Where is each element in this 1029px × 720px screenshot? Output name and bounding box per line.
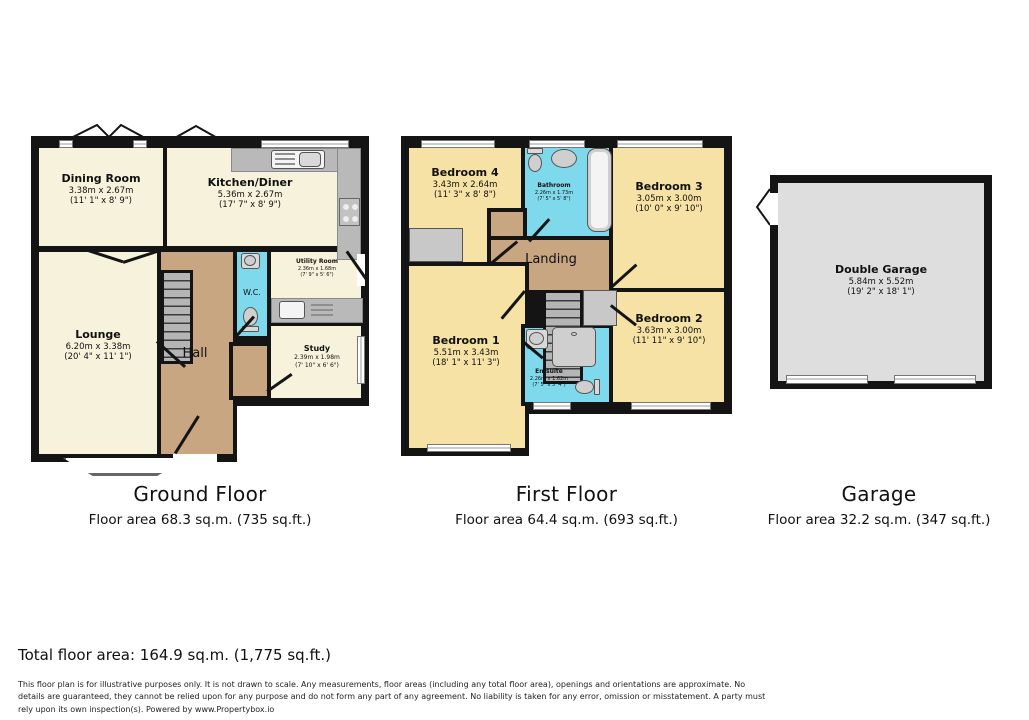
room-dim-ft: (7' 5" x 5' 8"): [525, 196, 583, 202]
window-opening-icon: [35, 123, 365, 141]
room-bedroom2: [609, 288, 728, 406]
window: [617, 140, 703, 148]
room-dim-m: 6.20m x 3.38m: [39, 342, 157, 353]
window: [631, 402, 711, 410]
room-dim-m: 5.84m x 5.52m: [801, 277, 961, 288]
basin-icon: [551, 149, 577, 168]
room-dim-ft: (11' 1" x 8' 9"): [43, 196, 159, 207]
room-label-kitchen: Kitchen/Diner 5.36m x 2.67m (17' 7" x 8'…: [175, 176, 325, 211]
room-label-study: Study 2.39m x 1.98m (7' 10" x 6' 6"): [275, 344, 359, 369]
wardrobe: [409, 228, 463, 262]
room-label-garage: Double Garage 5.84m x 5.52m (19' 2" x 18…: [801, 263, 961, 298]
room-name: En-suite: [523, 368, 575, 376]
room-label-utility: Utility Room 2.36m x 1.68m (7' 9" x 5' 6…: [273, 258, 361, 278]
room-dim-ft: (17' 7" x 8' 9"): [175, 200, 325, 211]
room-name: Study: [275, 344, 359, 354]
room-name: Bedroom 3: [613, 180, 725, 194]
ensuite-basin-bowl-icon: [529, 332, 544, 345]
room-label-wc: W.C.: [233, 288, 271, 298]
floor-title: Garage: [763, 482, 995, 506]
toilet-icon: [575, 380, 594, 394]
room-dim-ft: (10' 0" x 9' 10"): [613, 204, 725, 215]
hob-icon: [339, 198, 360, 226]
disclaimer-text: This floor plan is for illustrative purp…: [18, 679, 770, 716]
garage-door: [786, 375, 868, 384]
sink-bowl-icon: [299, 152, 321, 167]
ground-floor-plan: Dining Room 3.38m x 2.67m (11' 1" x 8' 9…: [35, 140, 365, 476]
window: [427, 444, 511, 452]
garage-title-block: Garage Floor area 32.2 sq.m. (347 sq.ft.…: [763, 482, 995, 528]
floor-area-label: Floor area 32.2 sq.m. (347 sq.ft.): [763, 512, 995, 528]
floor-area-label: Floor area 64.4 sq.m. (693 sq.ft.): [405, 512, 728, 528]
room-label-lounge: Lounge 6.20m x 3.38m (20' 4" x 11' 1"): [39, 328, 157, 363]
room-dim-m: 3.05m x 3.00m: [613, 194, 725, 205]
room-label-landing: Landing: [505, 252, 597, 268]
utility-drainer-icon: [311, 304, 333, 316]
floorplan-page: Dining Room 3.38m x 2.67m (11' 1" x 8' 9…: [0, 0, 1029, 720]
room-label-bedroom1: Bedroom 1 5.51m x 3.43m (18' 1" x 11' 3"…: [411, 334, 521, 369]
room-label-ensuite: En-suite 2.26m x 1.62m (7' 5" x 5' 4"): [523, 368, 575, 388]
room-name: Kitchen/Diner: [175, 176, 325, 190]
first-floor-plan: Bedroom 4 3.43m x 2.64m (11' 3" x 8' 8")…: [405, 140, 728, 456]
window: [529, 140, 585, 148]
floor-title: Ground Floor: [35, 482, 365, 506]
utility-sink-icon: [279, 301, 305, 319]
room-dim-m: 2.39m x 1.98m: [275, 354, 359, 362]
shower-drain-icon: [571, 332, 577, 336]
bathtub-icon: [587, 148, 612, 232]
window: [261, 140, 349, 148]
room-dim-m: 5.36m x 2.67m: [175, 190, 325, 201]
garage-door: [894, 375, 976, 384]
room-label-bathroom: Bathroom 2.26m x 1.73m (7' 5" x 5' 8"): [525, 182, 583, 202]
room-name: Bathroom: [525, 182, 583, 190]
room-name: Bedroom 4: [411, 166, 519, 180]
room-dim-m: 3.38m x 2.67m: [43, 186, 159, 197]
room-dim-ft: (11' 3" x 8' 8"): [411, 190, 519, 201]
front-door-opening: [173, 454, 217, 462]
room-dim-ft: (11' 11" x 9' 10"): [613, 336, 725, 347]
room-dim-ft: (7' 10" x 6' 6"): [275, 362, 359, 370]
room-dim-m: 3.63m x 3.00m: [613, 326, 725, 337]
room-name: Double Garage: [801, 263, 961, 277]
bay-window: [63, 458, 187, 476]
garage-side-door-opening: [770, 193, 778, 225]
window: [533, 402, 571, 410]
room-hall-arm: [229, 342, 271, 400]
toilet-icon: [528, 154, 542, 172]
room-name: Bedroom 1: [411, 334, 521, 348]
room-label-bedroom3: Bedroom 3 3.05m x 3.00m (10' 0" x 9' 10"…: [613, 180, 725, 215]
room-dim-ft: (18' 1" x 11' 3"): [411, 358, 521, 369]
floor-area-label: Floor area 68.3 sq.m. (735 sq.ft.): [35, 512, 365, 528]
garage-plan: Double Garage 5.84m x 5.52m (19' 2" x 18…: [770, 175, 992, 389]
room-name: Lounge: [39, 328, 157, 342]
room-dim-ft: (7' 9" x 5' 6"): [273, 272, 361, 278]
room-dim-m: 5.51m x 3.43m: [411, 348, 521, 359]
room-label-dining: Dining Room 3.38m x 2.67m (11' 1" x 8' 9…: [43, 172, 159, 207]
floor-title: First Floor: [405, 482, 728, 506]
window: [421, 140, 495, 148]
room-dim-ft: (20' 4" x 11' 1"): [39, 352, 157, 363]
window: [59, 140, 73, 148]
room-dim-ft: (19' 2" x 18' 1"): [801, 287, 961, 298]
room-name: Utility Room: [273, 258, 361, 266]
toilet-cistern-icon: [594, 379, 600, 395]
room-name: Dining Room: [43, 172, 159, 186]
room-label-bedroom4: Bedroom 4 3.43m x 2.64m (11' 3" x 8' 8"): [411, 166, 519, 201]
first-floor-title-block: First Floor Floor area 64.4 sq.m. (693 s…: [405, 482, 728, 528]
sink-drainer-icon: [275, 153, 295, 166]
room-dim-m: 2.26m x 1.62m: [523, 376, 575, 382]
room-dim-m: 3.43m x 2.64m: [411, 180, 519, 191]
wc-basin-bowl-icon: [244, 255, 256, 266]
ground-floor-title-block: Ground Floor Floor area 68.3 sq.m. (735 …: [35, 482, 365, 528]
total-floor-area: Total floor area: 164.9 sq.m. (1,775 sq.…: [18, 646, 331, 664]
room-label-bedroom2: Bedroom 2 3.63m x 3.00m (11' 11" x 9' 10…: [613, 312, 725, 347]
window: [133, 140, 147, 148]
room-dim-ft: (7' 5" x 5' 4"): [523, 382, 575, 388]
